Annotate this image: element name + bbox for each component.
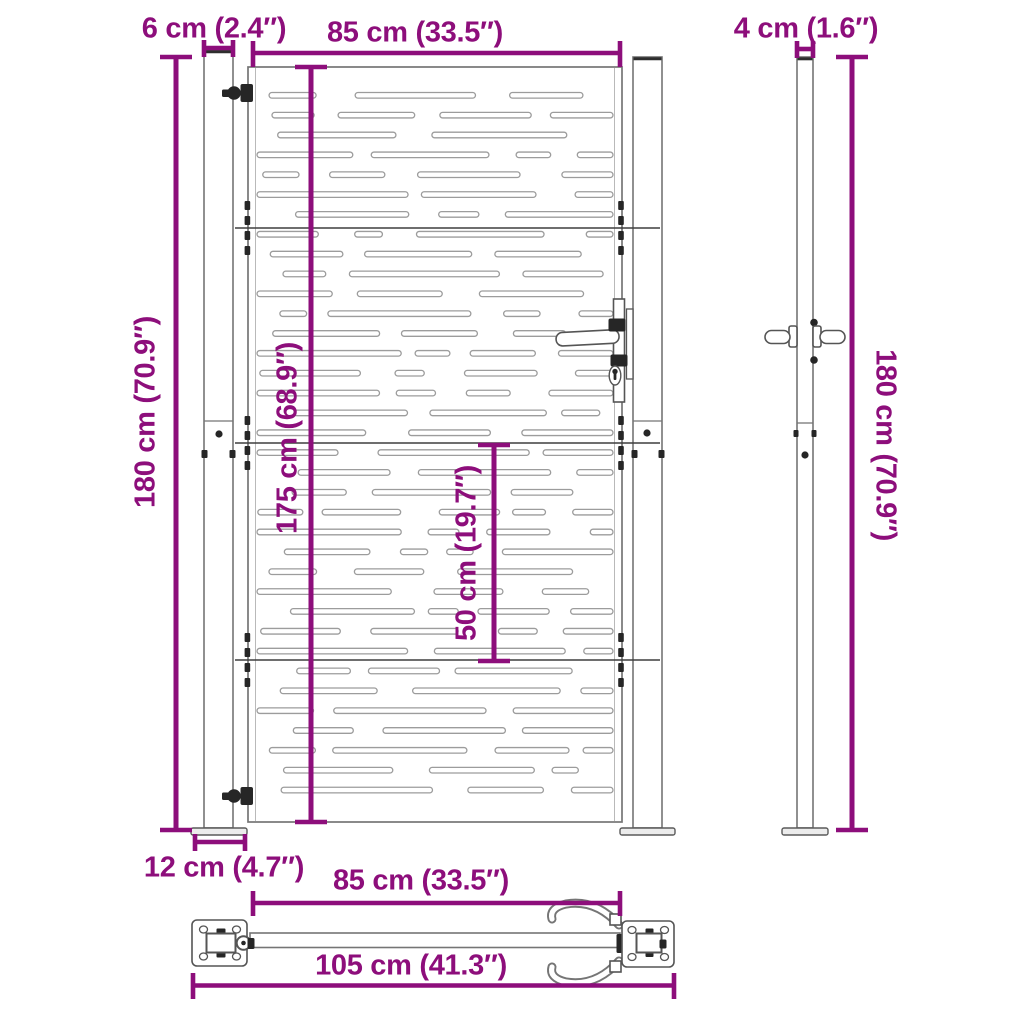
dim-line-base-plate	[195, 834, 245, 851]
dim-line-height-left	[160, 57, 192, 830]
side-view	[765, 57, 845, 835]
dim-label-total-width: 105 cm (41.3″)	[315, 952, 507, 981]
dim-line-height-right	[836, 57, 868, 830]
dim-label-base-plate: 12 cm (4.7″)	[144, 854, 304, 883]
gate-handle-lever	[556, 329, 620, 346]
dim-label-gate-height: 175 cm (68.9″)	[274, 342, 303, 534]
dim-label-side-post-width: 4 cm (1.6″)	[734, 15, 878, 44]
dim-label-height-left: 180 cm (70.9″)	[132, 316, 161, 508]
dim-label-post-width: 6 cm (2.4″)	[142, 15, 286, 44]
front-view	[191, 50, 675, 835]
dim-label-gate-width-bottom: 85 cm (33.5″)	[333, 867, 509, 896]
dim-label-gate-width-top: 85 cm (33.5″)	[327, 19, 503, 48]
top-view-hinge-plate	[192, 920, 255, 966]
right-post	[620, 57, 675, 835]
dim-label-lower-section: 50 cm (19.7″)	[453, 465, 482, 641]
dim-label-height-right: 180 cm (70.9″)	[871, 349, 900, 541]
keyhole-icon	[609, 366, 621, 385]
diagram-canvas: 6 cm (2.4″) 85 cm (33.5″) 4 cm (1.6″) 18…	[0, 0, 1024, 1024]
